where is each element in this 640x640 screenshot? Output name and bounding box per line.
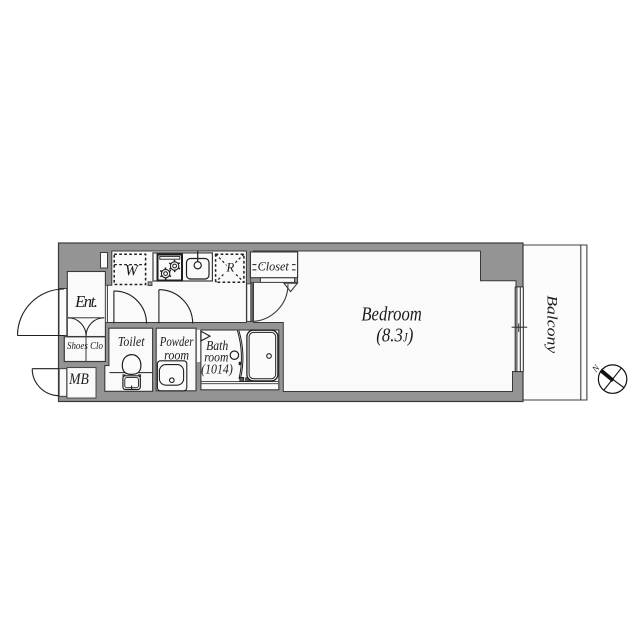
svg-text:Balcony: Balcony	[544, 295, 560, 354]
svg-text:Toilet: Toilet	[118, 334, 146, 349]
svg-text:(8.3J): (8.3J)	[376, 326, 413, 347]
svg-text:Bedroom: Bedroom	[361, 305, 421, 326]
svg-text:R: R	[225, 259, 234, 274]
svg-text:Closet: Closet	[258, 259, 290, 273]
svg-text:Ent.: Ent.	[74, 292, 98, 311]
svg-text:(1014): (1014)	[201, 361, 233, 377]
svg-text:MB: MB	[68, 371, 89, 388]
svg-text:W: W	[125, 262, 140, 279]
svg-text:Shoes Clo: Shoes Clo	[67, 341, 103, 352]
svg-text:room: room	[164, 347, 189, 362]
